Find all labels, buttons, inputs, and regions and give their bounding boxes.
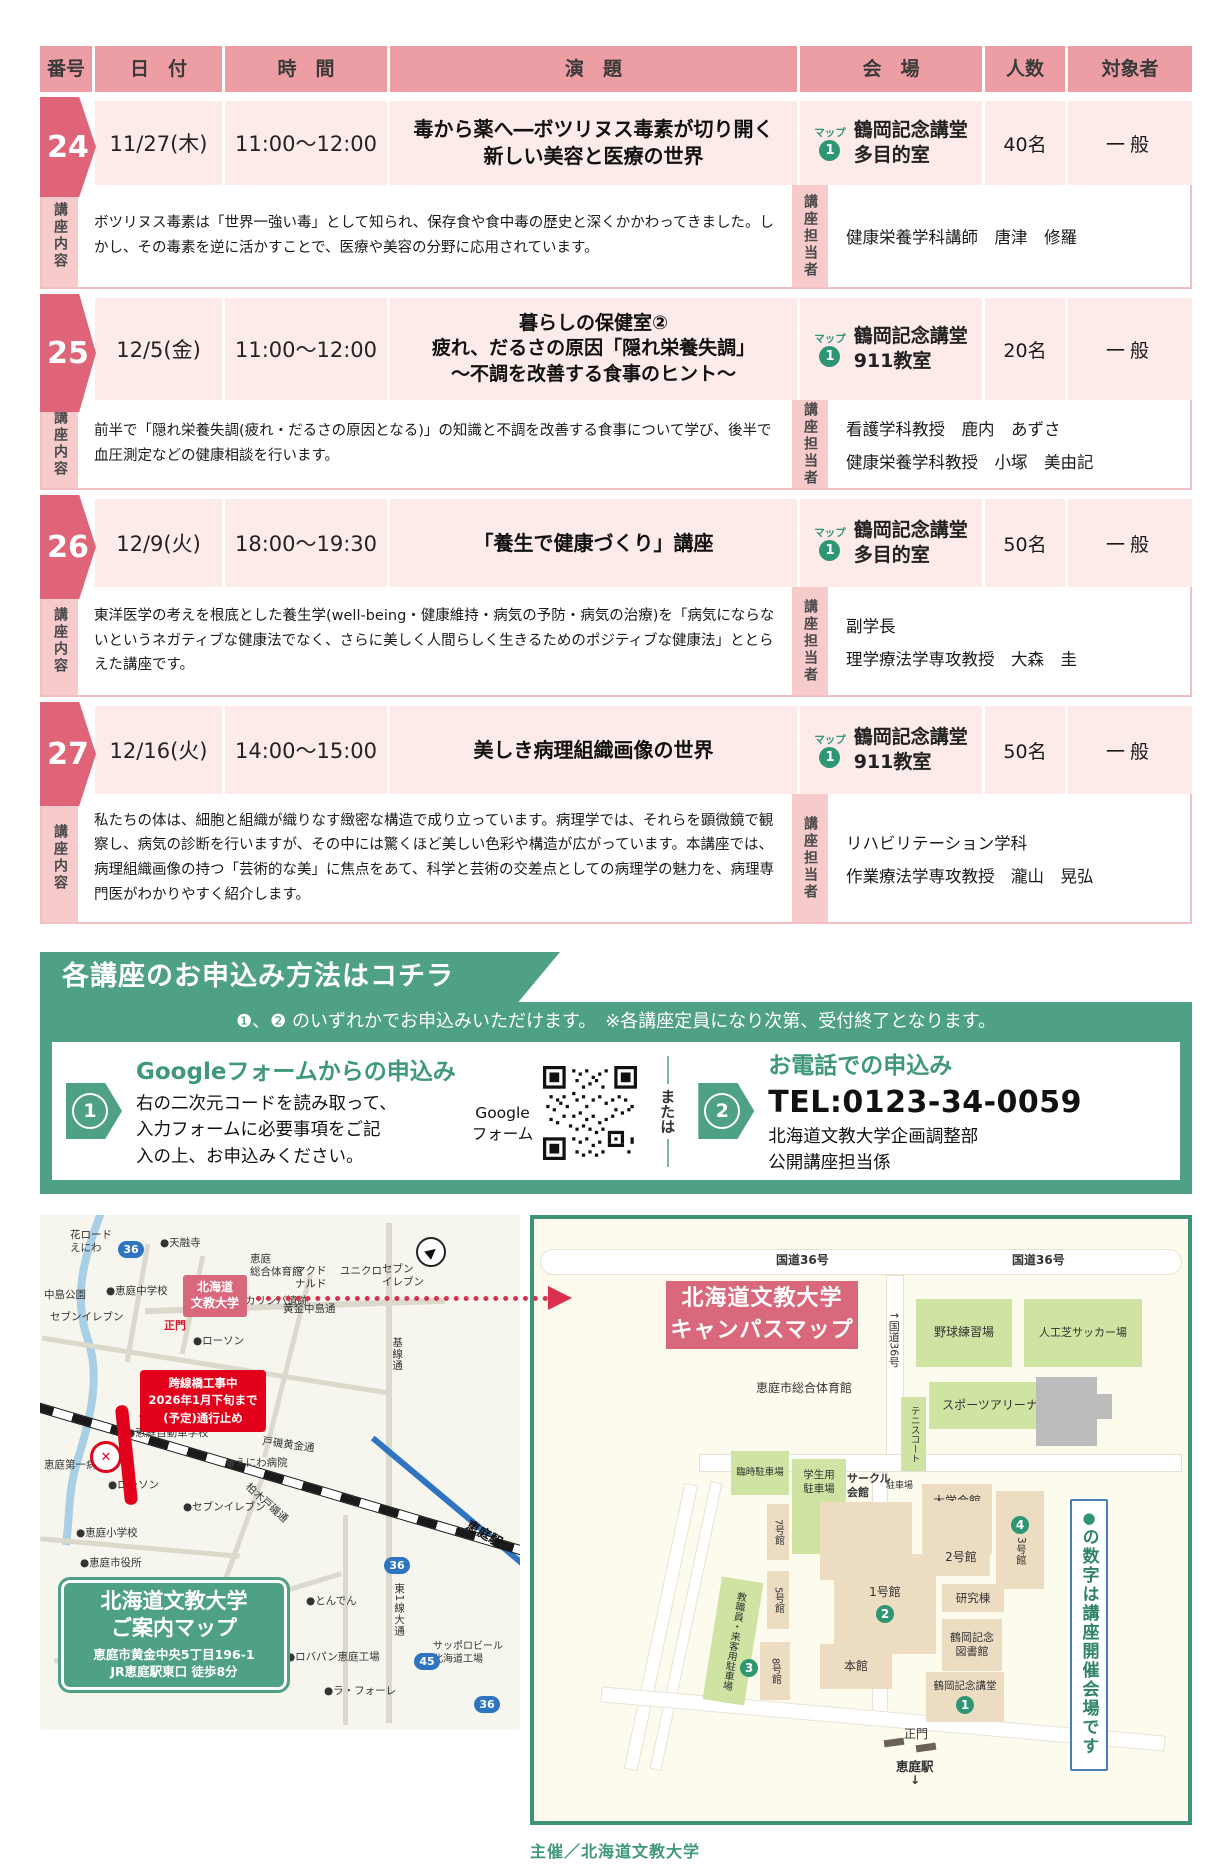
building-main: 本館 xyxy=(820,1644,892,1689)
apply-method-phone: 2 お電話での申込み TEL:0123-34-0059 北海道文教大学企画調整部… xyxy=(698,1046,1082,1177)
course-row-24: 24 11/27(木) 11:00〜12:00 毒から薬へ―ボツリヌス毒素が切り… xyxy=(40,101,1192,289)
course-lecturers: 健康栄養学科講師 唐津 修羅 xyxy=(828,185,1190,287)
course-description: 東洋医学の考えを根底とした養生学(well-being・健康維持・病気の予防・病… xyxy=(94,604,776,678)
building-staff-parking: 教職員・来客用駐車場 xyxy=(703,1576,764,1705)
course-lecturers: 副学長 理学療法学専攻教授 大森 圭 xyxy=(828,587,1190,695)
apply-banner: 各講座のお申込み方法はコチラ xyxy=(40,952,560,1002)
map-number-icon: 1 xyxy=(819,747,840,768)
phone-number: TEL:0123-34-0059 xyxy=(768,1085,1082,1120)
course-venue: 鶴岡記念講堂911教室 xyxy=(854,725,968,774)
building-tennis-court: テニスコート xyxy=(901,1397,926,1471)
route-shield-45: 45 xyxy=(414,1653,440,1670)
tab-course-lecturer: 講座担当者 xyxy=(792,794,828,922)
building-gray xyxy=(1036,1377,1097,1446)
map-label: ●恵庭中学校 xyxy=(106,1285,168,1298)
course-title-line: 「養生で健康づくり」講座 xyxy=(474,530,714,557)
course-title-line: 暮らしの保健室② xyxy=(519,311,668,337)
course-row-26: 26 12/9(火) 18:00〜19:30 「養生で健康づくり」講座 マップ … xyxy=(40,499,1192,697)
course-description: 私たちの体は、細胞と組織が織りなす緻密な構造で成り立っています。病理学では、それ… xyxy=(94,809,776,908)
course-time: 14:00〜15:00 xyxy=(225,706,390,794)
map-label: ●天融寺 xyxy=(160,1237,201,1250)
method-1-title: Googleフォームからの申込み xyxy=(136,1052,456,1086)
label-circle-hall: サークル 会館 xyxy=(847,1472,891,1501)
tab-course-content: 講座内容 xyxy=(42,794,78,922)
building-research: 研究棟 xyxy=(942,1584,1004,1612)
method-2-badge: 2 xyxy=(698,1083,754,1139)
course-row-27: 27 12/16(火) 14:00〜15:00 美しき病理組織画像の世界 マップ… xyxy=(40,706,1192,924)
course-time: 18:00〜19:30 xyxy=(225,499,390,587)
course-table: 番号 日 付 時 間 演 題 会 場 人数 対象者 24 11/27(木) 11… xyxy=(40,46,1192,924)
course-capacity: 50名 xyxy=(985,499,1068,587)
header-audience: 対象者 xyxy=(1068,46,1192,92)
map-label: 東1線大通 xyxy=(392,1583,405,1637)
map-label: マクド ナルド xyxy=(295,1265,327,1291)
venue-marker-1: 1 xyxy=(956,1696,974,1714)
course-number-badge: 24 xyxy=(40,97,96,197)
venue-marker-4: 4 xyxy=(1011,1516,1029,1534)
station-arrow: ↓ xyxy=(910,1773,920,1789)
building-baseball-field: 野球練習場 xyxy=(916,1299,1012,1367)
label-main-gate: 正門 xyxy=(904,1727,928,1743)
tab-course-content: 講座内容 xyxy=(42,587,78,695)
flyer-page: 番号 日 付 時 間 演 題 会 場 人数 対象者 24 11/27(木) 11… xyxy=(0,0,1230,1870)
access-info-box: 北海道文教大学 ご案内マップ 恵庭市黄金中央5丁目196-1 JR恵庭駅東口 徒… xyxy=(58,1577,290,1693)
header-venue: 会 場 xyxy=(800,46,985,92)
railroad-crossing-icon: ✕ xyxy=(90,1441,122,1473)
course-description: ボツリヌス毒素は「世界一強い毒」として知られ、保存食や食中毒の歴史と深くかかわっ… xyxy=(94,211,776,260)
course-venue: 鶴岡記念講堂多目的室 xyxy=(854,518,968,567)
tab-course-lecturer: 講座担当者 xyxy=(792,185,828,287)
map-label: サッポロビール 北海道工場 xyxy=(433,1641,503,1666)
building-tsuruoka-hall: 鶴岡記念講堂 1 xyxy=(926,1672,1004,1722)
course-title-line: 新しい美容と医療の世界 xyxy=(484,143,704,170)
building-temp-parking: 臨時駐車場 xyxy=(731,1451,789,1495)
course-capacity: 40名 xyxy=(985,101,1068,185)
route-label: ↑国道36号 xyxy=(886,1311,900,1367)
map-label: ●恵庭市役所 xyxy=(80,1557,142,1570)
building-library: 鶴岡記念 図書館 xyxy=(942,1619,1002,1671)
building-no3: 4 3号館 xyxy=(996,1491,1044,1589)
venue-marker-3: 3 xyxy=(740,1659,758,1677)
building-sports-arena: スポーツアリーナ xyxy=(929,1382,1051,1429)
map-badge: マップ 1 xyxy=(814,525,846,561)
campus-map-title: 北海道文教大学 キャンパスマップ xyxy=(666,1281,858,1349)
map-label: ●セブンイレブン xyxy=(183,1501,266,1514)
course-venue: 鶴岡記念講堂多目的室 xyxy=(854,118,968,167)
phone-org: 北海道文教大学企画調整部 公開講座担当係 xyxy=(768,1124,1082,1177)
course-time: 11:00〜12:00 xyxy=(225,298,390,400)
method-1-badge: 1 xyxy=(66,1083,122,1139)
map-link-arrowhead-icon xyxy=(548,1286,572,1310)
label-parking: 駐車場 xyxy=(886,1481,913,1493)
venue-note: ● の数字は講座開催会場です xyxy=(1070,1499,1108,1771)
course-date: 12/5(金) xyxy=(95,298,225,400)
course-capacity: 50名 xyxy=(985,706,1068,794)
gate-mark xyxy=(916,1743,937,1753)
header-number: 番号 xyxy=(40,46,95,92)
map-label: ●えにわ病院 xyxy=(226,1457,288,1470)
apply-note: ❶、❷ のいずれかでお申込みいただけます。 ※各講座定員になり次第、受付終了とな… xyxy=(40,1002,1192,1042)
course-audience: 一般 xyxy=(1068,706,1192,794)
course-number-badge: 25 xyxy=(40,294,96,412)
method-1-body: 右の二次元コードを読み取って、 入力フォームに必要事項をご記 入の上、お申込みく… xyxy=(136,1091,456,1170)
or-separator: または xyxy=(657,1056,678,1167)
qr-label: Google フォーム xyxy=(472,1103,534,1145)
table-header-row: 番号 日 付 時 間 演 題 会 場 人数 対象者 xyxy=(40,46,1192,92)
course-title-line: 疲れ、だるさの原因「隠れ栄養失調」 xyxy=(432,336,755,362)
building-no7: 7号館 xyxy=(767,1504,789,1560)
map-label: ●ラ・フォーレ xyxy=(324,1685,396,1698)
course-date: 11/27(木) xyxy=(95,101,225,185)
course-capacity: 20名 xyxy=(985,298,1068,400)
course-description: 前半で「隠れ栄養失調(疲れ・だるさの原因となる)」の知識と不調を改善する食事につ… xyxy=(94,419,776,468)
map-label: ●ロバパン恵庭工場 xyxy=(286,1651,380,1664)
map-label: 中島公園 xyxy=(44,1289,86,1302)
course-time: 11:00〜12:00 xyxy=(225,101,390,185)
course-date: 12/16(火) xyxy=(95,706,225,794)
header-capacity: 人数 xyxy=(985,46,1068,92)
apply-methods-box: 1 Googleフォームからの申込み 右の二次元コードを読み取って、 入力フォー… xyxy=(52,1042,1180,1180)
map-label: ●ローソン xyxy=(193,1335,244,1348)
venue-marker-2: 2 xyxy=(876,1605,894,1623)
header-date: 日 付 xyxy=(95,46,225,92)
route-shield-36: 36 xyxy=(474,1696,500,1713)
course-number-badge: 27 xyxy=(40,702,96,806)
map-number-icon: 1 xyxy=(819,540,840,561)
map-label: ●恵庭小学校 xyxy=(76,1527,138,1540)
map-label: セブンイレブン xyxy=(50,1311,124,1324)
tab-course-content: 講座内容 xyxy=(42,400,78,488)
building-soccer-field: 人工芝サッカー場 xyxy=(1024,1299,1142,1367)
course-title-line: 毒から薬へ―ボツリヌス毒素が切り開く xyxy=(414,116,774,143)
tab-course-lecturer: 講座担当者 xyxy=(792,400,828,488)
course-audience: 一般 xyxy=(1068,101,1192,185)
apply-section: 各講座のお申込み方法はコチラ ❶、❷ のいずれかでお申込みいただけます。 ※各講… xyxy=(40,952,1192,1194)
course-date: 12/9(火) xyxy=(95,499,225,587)
road xyxy=(540,1249,1182,1275)
tab-course-lecturer: 講座担当者 xyxy=(792,587,828,695)
construction-callout: 跨線橋工事中 2026年1月下旬まで (予定)通行止め xyxy=(140,1370,266,1432)
course-audience: 一般 xyxy=(1068,499,1192,587)
course-title-line: 美しき病理組織画像の世界 xyxy=(474,737,714,764)
building-no5: 5号館 xyxy=(767,1571,789,1629)
map-badge: マップ 1 xyxy=(814,732,846,768)
map-label: 基線通 xyxy=(390,1337,403,1372)
label-city-gym: 恵庭市総合体育館 xyxy=(756,1381,852,1397)
course-audience: 一般 xyxy=(1068,298,1192,400)
access-map: ✕ 跨線橋工事中 2026年1月下旬まで (予定)通行止め 北海道 文教大学 ▶… xyxy=(40,1215,520,1730)
map-badge: マップ 1 xyxy=(814,125,846,161)
qr-code xyxy=(543,1066,637,1160)
course-lecturers: リハビリテーション学科 作業療法学専攻教授 瀧山 晃弘 xyxy=(828,794,1190,922)
course-row-25: 25 12/5(金) 11:00〜12:00 暮らしの保健室② 疲れ、だるさの原… xyxy=(40,298,1192,490)
map-badge: マップ 1 xyxy=(814,331,846,367)
map-label: ●とんでん xyxy=(306,1595,357,1608)
course-venue: 鶴岡記念講堂911教室 xyxy=(854,324,968,373)
building-no1: 1号館 2 xyxy=(834,1554,936,1654)
map-label: セブン イレブン xyxy=(382,1263,424,1289)
map-label-main-gate: 正門 xyxy=(164,1319,186,1333)
campus-map: 国道36号 国道36号 ↑国道36号 北海道文教大学 キャンパスマップ 野球練習… xyxy=(530,1215,1192,1825)
building-no2: 2号館 xyxy=(932,1501,990,1576)
route-shield-36: 36 xyxy=(118,1241,144,1258)
map-number-icon: 1 xyxy=(819,346,840,367)
course-lecturers: 看護学科教授 鹿内 あずさ 健康栄養学科教授 小塚 美由記 xyxy=(828,400,1190,488)
university-marker-box: 北海道 文教大学 xyxy=(183,1275,247,1317)
header-time: 時 間 xyxy=(225,46,390,92)
map-number-icon: 1 xyxy=(819,140,840,161)
bullet-icon: ● xyxy=(1082,1509,1095,1527)
organizer-footer: 主催／北海道文教大学 xyxy=(0,1838,1230,1862)
course-title-line: 〜不調を改善する食事のヒント〜 xyxy=(451,362,736,388)
gate-mark xyxy=(884,1738,905,1748)
method-2-title: お電話での申込み xyxy=(768,1046,1082,1080)
map-label: 花ロード えにわ xyxy=(70,1229,112,1255)
map-label: ユニクロ xyxy=(340,1265,382,1278)
tab-course-content: 講座内容 xyxy=(42,185,78,287)
route-label: 国道36号 xyxy=(776,1253,829,1269)
building-no8: 8号館 xyxy=(760,1642,790,1700)
course-number-badge: 26 xyxy=(40,495,96,599)
route-shield-36: 36 xyxy=(384,1557,410,1574)
route-label: 国道36号 xyxy=(1012,1253,1065,1269)
apply-method-google: 1 Googleフォームからの申込み 右の二次元コードを読み取って、 入力フォー… xyxy=(66,1052,637,1170)
header-title: 演 題 xyxy=(390,46,800,92)
map-link-arrow xyxy=(256,1296,548,1301)
building-gray xyxy=(1097,1394,1112,1419)
